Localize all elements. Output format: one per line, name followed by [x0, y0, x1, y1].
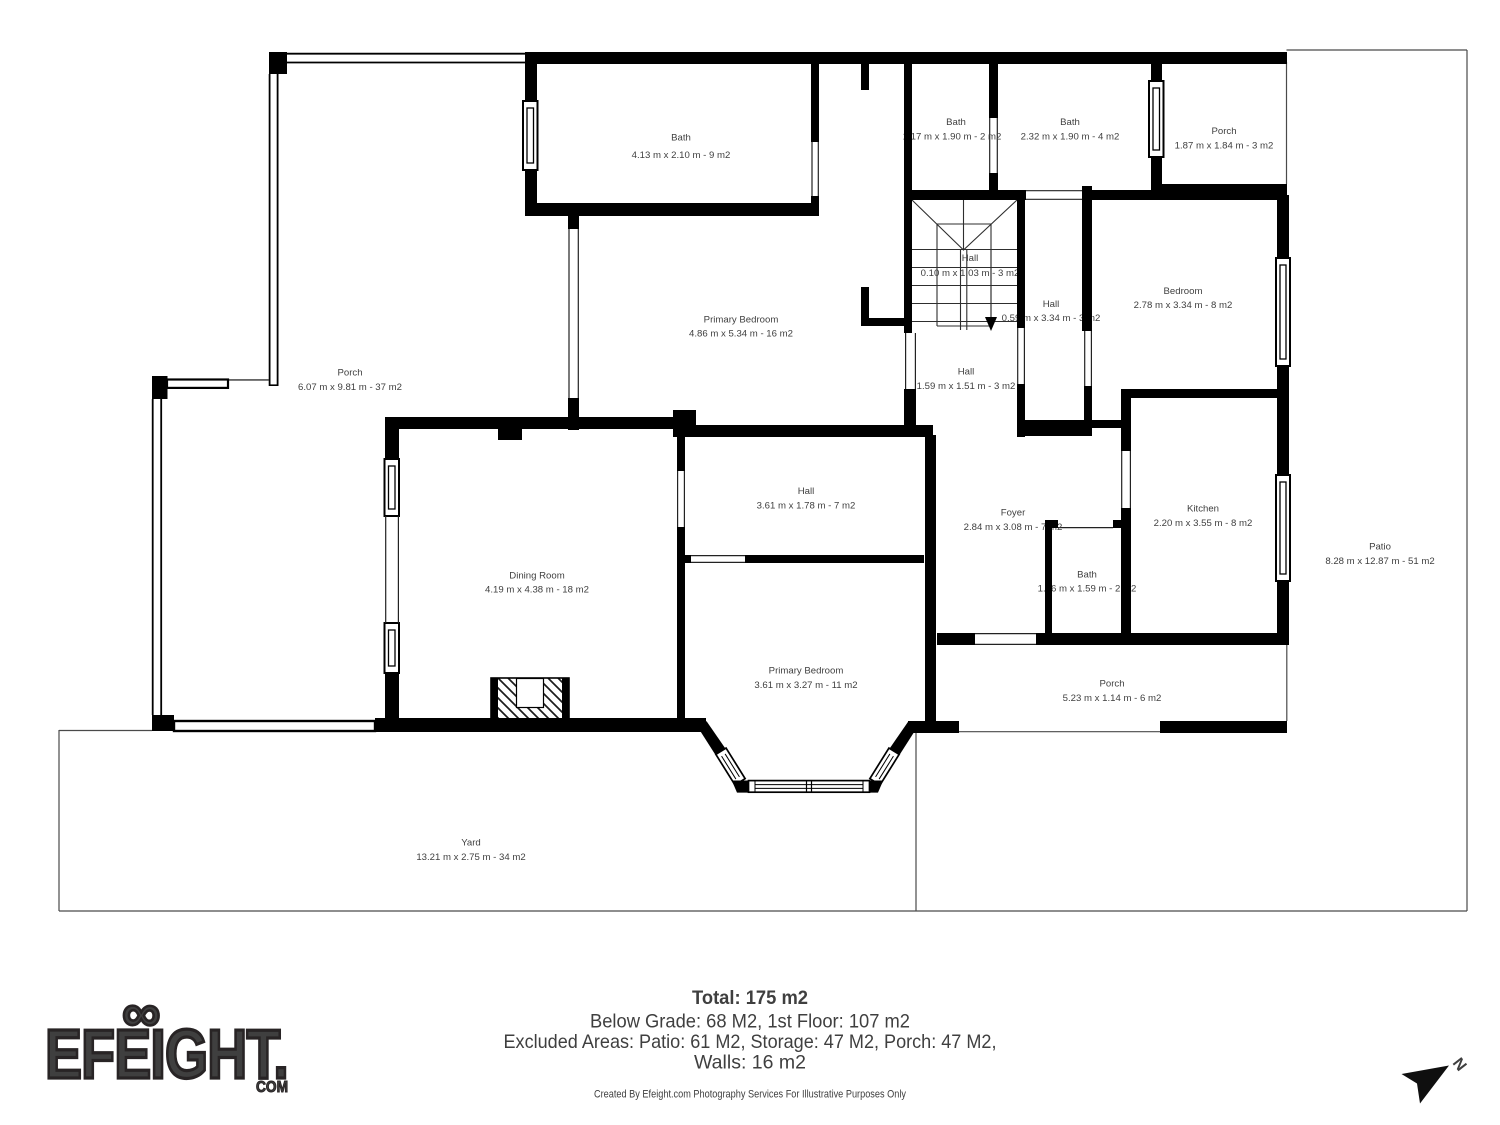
svg-text:8.28 m x 12.87 m - 51 m2: 8.28 m x 12.87 m - 51 m2	[1325, 556, 1434, 567]
svg-text:4.86 m x 5.34 m - 16 m2: 4.86 m x 5.34 m - 16 m2	[689, 329, 793, 340]
svg-text:Hall: Hall	[962, 253, 979, 264]
svg-text:1.17 m x 1.90 m - 2 m2: 1.17 m x 1.90 m - 2 m2	[903, 132, 1002, 143]
svg-text:Dining Room: Dining Room	[509, 571, 564, 582]
svg-text:Hall: Hall	[798, 486, 815, 497]
svg-text:6.07 m x 9.81 m - 37 m2: 6.07 m x 9.81 m - 37 m2	[298, 382, 402, 393]
svg-text:5.23 m x 1.14 m - 6 m2: 5.23 m x 1.14 m - 6 m2	[1063, 693, 1162, 704]
svg-text:4.13 m x 2.10 m - 9 m2: 4.13 m x 2.10 m - 9 m2	[632, 150, 731, 161]
svg-text:Patio: Patio	[1369, 542, 1391, 553]
svg-text:Bath: Bath	[1060, 117, 1080, 128]
svg-text:Porch: Porch	[1211, 126, 1236, 137]
svg-text:Primary Bedroom: Primary Bedroom	[704, 315, 779, 326]
svg-text:2.32 m x 1.90 m - 4 m2: 2.32 m x 1.90 m - 4 m2	[1021, 132, 1120, 143]
svg-text:1.59 m x 1.51 m - 3 m2: 1.59 m x 1.51 m - 3 m2	[917, 381, 1016, 392]
svg-text:Bath: Bath	[946, 117, 966, 128]
svg-text:2.78 m x 3.34 m - 8 m2: 2.78 m x 3.34 m - 8 m2	[1134, 300, 1233, 311]
svg-text:Excluded Areas: Patio: 61 M2,: Excluded Areas: Patio: 61 M2, Storage: 4…	[504, 1031, 997, 1053]
svg-text:Kitchen: Kitchen	[1187, 504, 1219, 515]
svg-text:Bath: Bath	[671, 133, 691, 144]
svg-text:Bath: Bath	[1077, 570, 1097, 581]
svg-text:Hall: Hall	[1043, 299, 1060, 310]
svg-text:Yard: Yard	[461, 838, 481, 849]
svg-text:∞: ∞	[122, 983, 161, 1043]
svg-text:Walls: 16 m2: Walls: 16 m2	[694, 1052, 806, 1074]
svg-text:0.10 m x 1.03 m - 3 m2: 0.10 m x 1.03 m - 3 m2	[921, 268, 1020, 279]
svg-text:2.20 m x 3.55 m - 8 m2: 2.20 m x 3.55 m - 8 m2	[1154, 518, 1253, 529]
svg-text:Foyer: Foyer	[1001, 508, 1026, 519]
svg-text:Bedroom: Bedroom	[1164, 286, 1203, 297]
svg-text:EFEIGHT.: EFEIGHT.	[45, 1015, 288, 1093]
svg-text:13.21 m x 2.75 m - 34 m2: 13.21 m x 2.75 m - 34 m2	[416, 852, 525, 863]
svg-text:Porch: Porch	[337, 368, 362, 379]
svg-text:3.61 m x 1.78 m - 7 m2: 3.61 m x 1.78 m - 7 m2	[757, 501, 856, 512]
svg-text:4.19 m x 4.38 m - 18 m2: 4.19 m x 4.38 m - 18 m2	[485, 585, 589, 596]
svg-text:3.61 m x 3.27 m - 11 m2: 3.61 m x 3.27 m - 11 m2	[754, 680, 857, 691]
svg-text:Primary Bedroom: Primary Bedroom	[769, 666, 844, 677]
svg-text:1.87 m x 1.84 m - 3 m2: 1.87 m x 1.84 m - 3 m2	[1175, 141, 1274, 152]
svg-text:Below Grade: 68 M2, 1st Floor:: Below Grade: 68 M2, 1st Floor: 107 m2	[590, 1011, 910, 1033]
svg-text:Hall: Hall	[958, 367, 975, 378]
svg-text:COM: COM	[256, 1079, 288, 1096]
svg-text:Created By Efeight.com Photogr: Created By Efeight.com Photography Servi…	[594, 1089, 907, 1101]
svg-text:Total: 175 m2: Total: 175 m2	[692, 987, 808, 1009]
svg-text:Porch: Porch	[1099, 679, 1124, 690]
